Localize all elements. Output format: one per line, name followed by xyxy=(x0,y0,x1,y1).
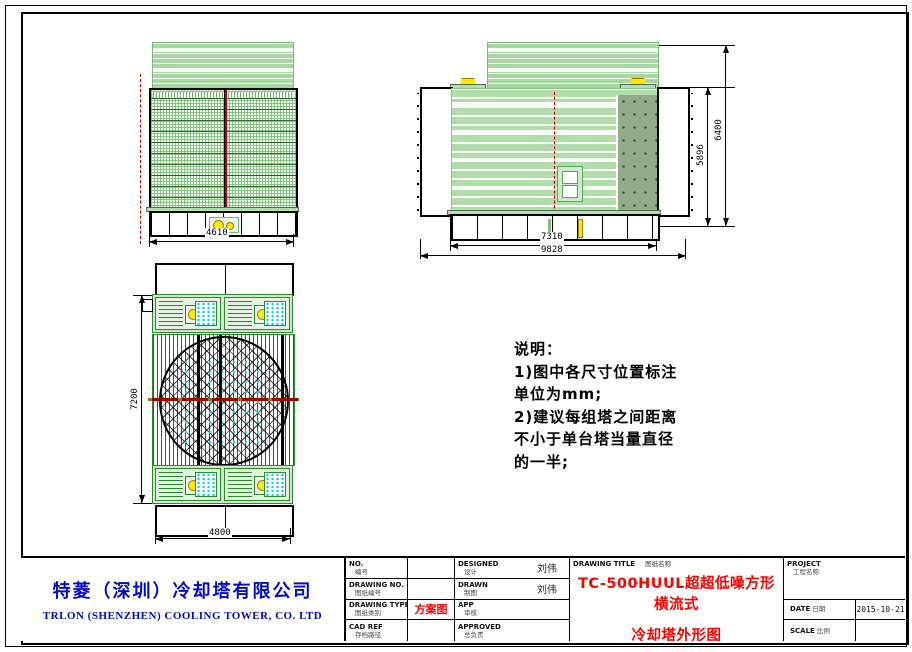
project-label-cn: 工程名称 xyxy=(787,568,902,576)
drawing-title-cell: DRAWING TITLE 图纸名称 TC-500HUUL超超低噪方形横流式 冷… xyxy=(570,558,784,641)
drawing-title-label-cn: 图纸名称 xyxy=(639,560,671,568)
no-label-cell: NO. 编号 xyxy=(346,558,408,579)
drawing-no-label-cell: DRAWING NO. 图纸编号 xyxy=(346,579,408,600)
drawing-title-label-en: DRAWING TITLE xyxy=(573,560,635,568)
drawn-cell: DRAWN 制图 刘伟 xyxy=(455,579,570,600)
approved-label-cn: 总负责 xyxy=(458,631,501,639)
drawing-no-label-en: DRAWING NO. xyxy=(349,581,404,589)
company-cell: 特菱（深圳）冷却塔有限公司 TRLON (SHENZHEN) COOLING T… xyxy=(21,558,346,641)
no-label-cn: 编号 xyxy=(349,568,404,576)
no-label-en: NO. xyxy=(349,560,404,568)
company-name-cn: 特菱（深圳）冷却塔有限公司 xyxy=(53,577,313,603)
app-cell: APP 审核 xyxy=(455,600,570,621)
app-label-cn: 审核 xyxy=(458,609,477,617)
no-value-cell xyxy=(408,558,455,579)
company-name-en: TRLON (SHENZHEN) COOLING TOWER, CO. LTD xyxy=(43,610,322,622)
drawn-label-cn: 制图 xyxy=(458,589,488,597)
drawn-label-en: DRAWN xyxy=(458,581,488,589)
scale-label-cn: 比例 xyxy=(817,627,830,635)
drawing-no-value-cell xyxy=(408,579,455,600)
drawing-type-label-cn: 图纸类别 xyxy=(349,609,404,617)
drawing-no-label-cn: 图纸编号 xyxy=(349,589,404,597)
scale-cell: SCALE 比例 xyxy=(784,620,905,641)
drawing-type-value: 方案图 xyxy=(411,601,451,617)
date-value: 2015-10-21 xyxy=(856,605,905,614)
title-block: 特菱（深圳）冷却塔有限公司 TRLON (SHENZHEN) COOLING T… xyxy=(21,556,905,641)
drawn-value: 刘伟 xyxy=(537,581,557,596)
scale-label-en: SCALE xyxy=(790,627,815,635)
designed-cell: DESIGNED 设计 刘伟 xyxy=(455,558,570,579)
date-cell: DATE 日期 2015-10-21 xyxy=(784,600,905,621)
designed-value: 刘伟 xyxy=(537,560,557,575)
drawing-type-value-cell: 方案图 xyxy=(408,600,455,621)
drawing-sheet: 4610 7310 982 xyxy=(0,0,912,652)
project-cell: PROJECT 工程名称 xyxy=(784,558,905,600)
cad-ref-value-cell xyxy=(408,620,455,641)
cad-ref-label-cell: CAD REF 存档路径 xyxy=(346,620,408,641)
drawing-title-line2: 冷却塔外形图 xyxy=(573,624,780,641)
title-block-table: NO. 编号 DESIGNED 设计 刘伟 DRAWING NO. 图纸编号 xyxy=(346,558,905,641)
drawing-title-line1: TC-500HUUL超超低噪方形横流式 xyxy=(573,572,780,614)
cad-ref-label-en: CAD REF xyxy=(349,623,404,631)
cad-ref-label-cn: 存档路径 xyxy=(349,631,404,639)
drawing-type-label-cell: DRAWING TYPE 图纸类别 xyxy=(346,600,408,621)
designed-label-cn: 设计 xyxy=(458,568,498,576)
date-label-en: DATE xyxy=(790,605,810,613)
designed-label-en: DESIGNED xyxy=(458,560,498,568)
approved-label-en: APPROVED xyxy=(458,623,501,631)
date-label-cn: 日期 xyxy=(812,605,825,613)
project-label-en: PROJECT xyxy=(787,560,902,568)
approved-cell: APPROVED 总负责 xyxy=(455,620,570,641)
